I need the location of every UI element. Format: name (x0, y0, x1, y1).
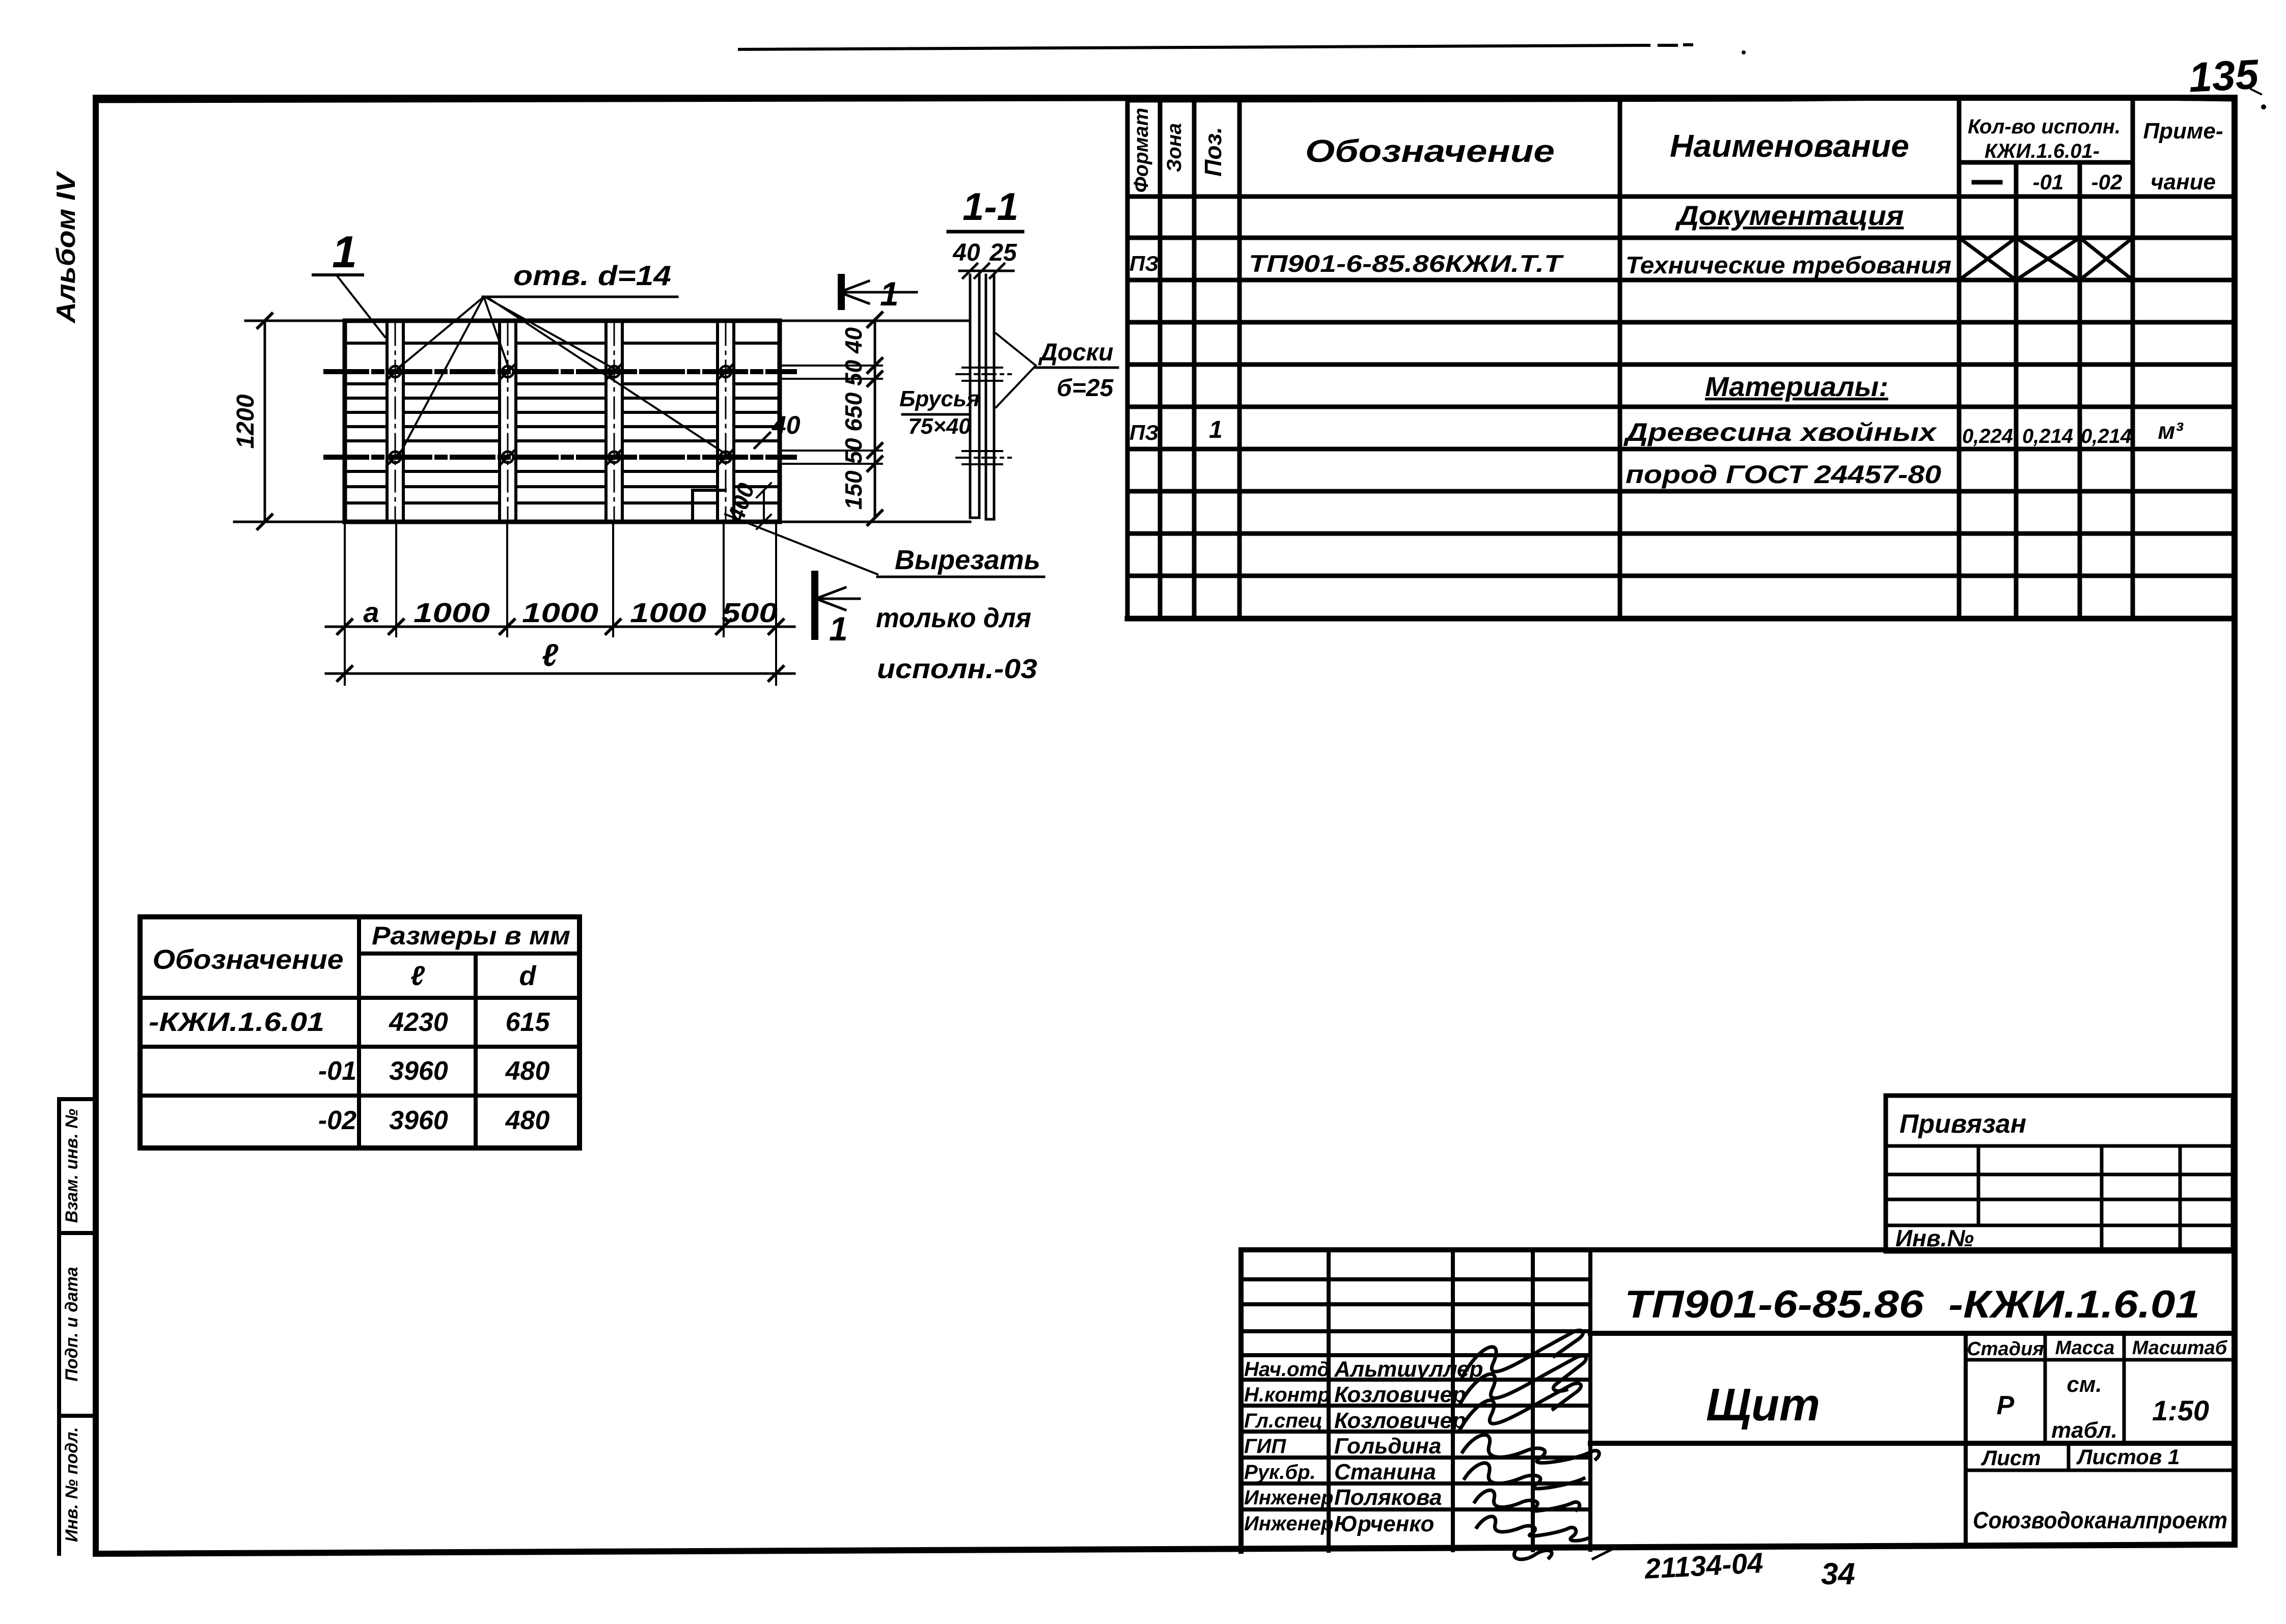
svg-text:Листов 1: Листов 1 (2076, 1445, 2180, 1469)
svg-text:0,224: 0,224 (1962, 425, 2013, 447)
svg-text:150 50 650 50 40: 150 50 650 50 40 (840, 327, 867, 510)
svg-text:1: 1 (1209, 416, 1223, 443)
svg-text:Технические требования: Технические требования (1626, 251, 1951, 278)
svg-text:40: 40 (772, 411, 801, 439)
svg-text:1200: 1200 (232, 394, 259, 449)
svg-text:Обозначение: Обозначение (1305, 134, 1555, 169)
svg-text:Взам. инв. №: Взам. инв. № (62, 1109, 81, 1223)
svg-text:1: 1 (880, 275, 899, 313)
svg-text:исполн.-03: исполн.-03 (877, 654, 1037, 684)
svg-text:Обозначение: Обозначение (153, 944, 344, 975)
svg-text:480: 480 (505, 1106, 550, 1135)
svg-text:Юрченко: Юрченко (1334, 1511, 1434, 1536)
svg-text:Козловичер: Козловичер (1334, 1408, 1466, 1433)
svg-text:Подп. и дата: Подп. и дата (62, 1267, 81, 1381)
svg-text:Привязан: Привязан (1899, 1109, 2026, 1139)
svg-text:d: d (519, 961, 537, 991)
svg-text:Древесина хвойных: Древесина хвойных (1623, 418, 1938, 446)
svg-text:ПЗ: ПЗ (1130, 251, 1159, 275)
svg-text:21134-04: 21134-04 (1643, 1547, 1764, 1585)
svg-text:Н.контр: Н.контр (1244, 1384, 1330, 1406)
svg-text:Станина: Станина (1334, 1460, 1436, 1485)
svg-text:см.: см. (2067, 1372, 2102, 1397)
svg-text:Лист: Лист (1980, 1446, 2041, 1470)
svg-text:Гольдина: Гольдина (1334, 1434, 1441, 1459)
svg-text:Р: Р (1997, 1391, 2015, 1420)
svg-text:500: 500 (722, 598, 778, 628)
svg-text:Масса: Масса (2055, 1337, 2115, 1359)
svg-text:34: 34 (1821, 1557, 1855, 1591)
svg-text:-01: -01 (318, 1056, 356, 1086)
svg-text:-01: -01 (2033, 170, 2064, 194)
svg-text:Доски: Доски (1038, 339, 1113, 366)
svg-text:Зона: Зона (1163, 123, 1186, 173)
svg-text:м³: м³ (2158, 417, 2184, 444)
svg-text:0,214: 0,214 (2022, 425, 2073, 447)
svg-text:Масштаб: Масштаб (2132, 1337, 2228, 1359)
svg-text:Формат: Формат (1130, 108, 1152, 193)
svg-text:Размеры в мм: Размеры в мм (372, 921, 570, 950)
svg-text:1: 1 (829, 610, 848, 648)
svg-text:Рук.бр.: Рук.бр. (1244, 1461, 1316, 1483)
svg-text:Приме-: Приме- (2143, 119, 2223, 144)
svg-text:1000: 1000 (522, 598, 598, 628)
svg-text:1:50: 1:50 (2152, 1394, 2209, 1426)
svg-text:ГИП: ГИП (1244, 1435, 1286, 1458)
svg-text:Документация: Документация (1675, 201, 1904, 231)
svg-text:ℓ: ℓ (410, 961, 425, 991)
svg-text:ТП901-6-85.86КЖИ.Т.Т: ТП901-6-85.86КЖИ.Т.Т (1249, 250, 1564, 277)
svg-text:Поз.: Поз. (1200, 127, 1226, 176)
svg-text:Наименование: Наименование (1670, 129, 1909, 164)
svg-text:1000: 1000 (414, 598, 490, 628)
svg-text:4230: 4230 (389, 1007, 448, 1037)
svg-text:б=25: б=25 (1057, 375, 1114, 402)
svg-text:1: 1 (332, 227, 357, 277)
svg-text:чание: чание (2151, 170, 2216, 194)
svg-text:Инженер: Инженер (1244, 1487, 1333, 1509)
svg-text:табл.: табл. (2051, 1418, 2117, 1443)
svg-text:480: 480 (505, 1056, 550, 1086)
svg-text:-02: -02 (2091, 170, 2123, 194)
svg-text:только для: только для (876, 603, 1031, 633)
svg-text:Альбом IV: Альбом IV (51, 171, 81, 324)
svg-text:Вырезать: Вырезать (895, 545, 1040, 575)
svg-text:Нач.отд: Нач.отд (1244, 1358, 1330, 1381)
svg-text:Инженер: Инженер (1244, 1513, 1333, 1535)
svg-text:Кол-во исполн.: Кол-во исполн. (1968, 116, 2120, 138)
svg-text:отв. d=14: отв. d=14 (513, 260, 671, 291)
svg-text:40: 40 (952, 239, 980, 266)
svg-text:0,214: 0,214 (2081, 425, 2132, 447)
svg-text:Гл.спец: Гл.спец (1244, 1410, 1323, 1432)
svg-text:3960: 3960 (389, 1056, 448, 1086)
svg-text:615: 615 (506, 1007, 550, 1037)
svg-text:пород ГОСТ 24457-80: пород ГОСТ 24457-80 (1626, 460, 1941, 489)
svg-text:-02: -02 (318, 1106, 356, 1135)
svg-text:25: 25 (989, 239, 1017, 266)
svg-text:1-1: 1-1 (962, 185, 1018, 229)
svg-text:Материалы:: Материалы: (1705, 372, 1888, 402)
svg-text:Инв. № подл.: Инв. № подл. (62, 1427, 81, 1542)
svg-text:Козловичер: Козловичер (1334, 1382, 1466, 1407)
svg-text:Полякова: Полякова (1334, 1485, 1442, 1510)
svg-text:Стадия: Стадия (1967, 1338, 2044, 1360)
svg-text:ТП901-6-85.86 -КЖИ.1.6.01: ТП901-6-85.86 -КЖИ.1.6.01 (1624, 1283, 2200, 1326)
svg-text:a: a (363, 596, 379, 628)
svg-text:75×40: 75×40 (908, 414, 971, 439)
svg-text:3960: 3960 (389, 1106, 448, 1135)
svg-text:ℓ: ℓ (542, 638, 559, 673)
svg-text:Щит: Щит (1706, 1380, 1820, 1431)
svg-text:КЖИ.1.6.01-: КЖИ.1.6.01- (1985, 140, 2100, 162)
svg-text:Союзводоканалпроект: Союзводоканалпроект (1973, 1507, 2227, 1533)
svg-text:1000: 1000 (630, 598, 706, 628)
svg-text:ПЗ: ПЗ (1130, 421, 1159, 444)
svg-text:-КЖИ.1.6.01: -КЖИ.1.6.01 (149, 1007, 324, 1037)
svg-text:135: 135 (2188, 51, 2261, 101)
svg-text:Брусья: Брусья (899, 386, 980, 411)
